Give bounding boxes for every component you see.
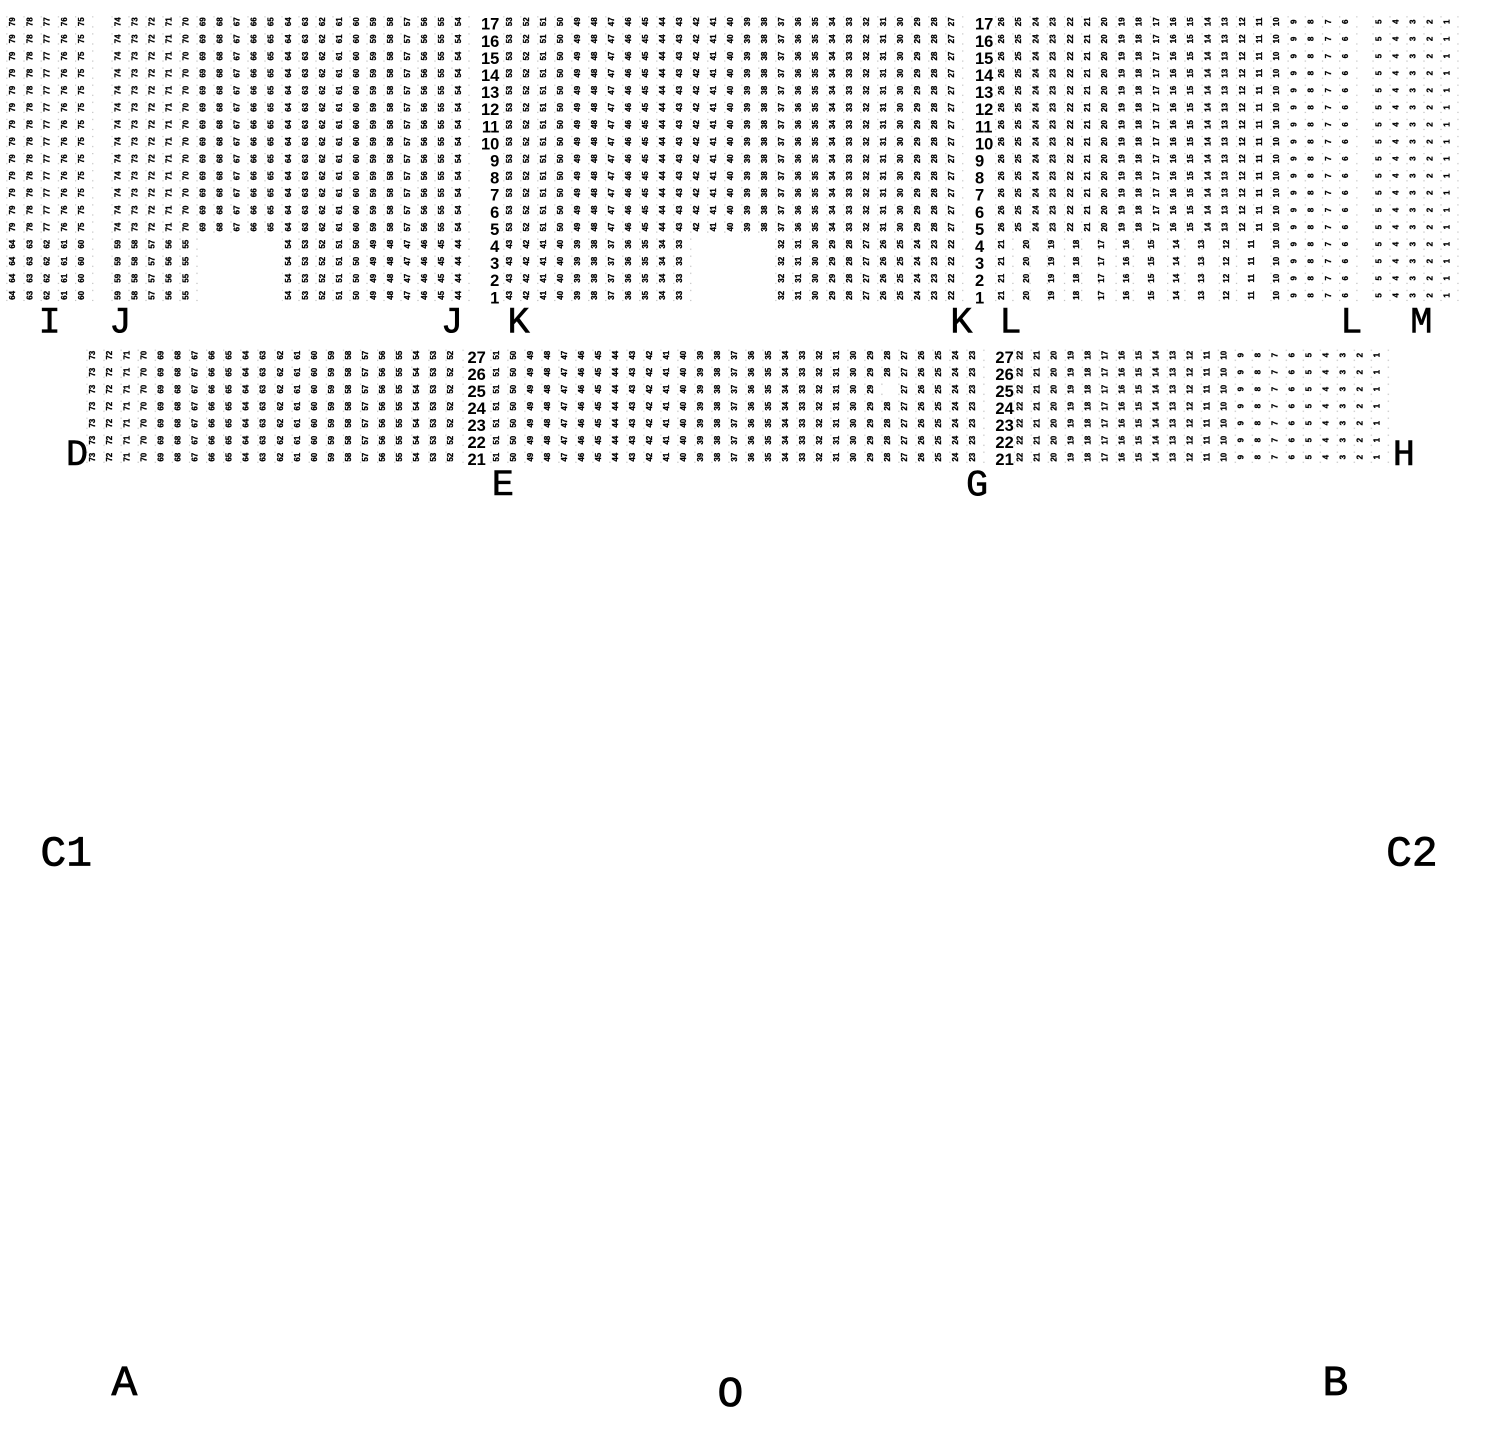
svg-text:11: 11 [482, 118, 499, 136]
svg-text:64: 64 [242, 350, 251, 359]
svg-text:13: 13 [1221, 68, 1230, 77]
svg-text:11: 11 [1247, 291, 1256, 300]
svg-text:67: 67 [191, 452, 200, 461]
svg-text:19: 19 [1067, 418, 1076, 427]
svg-text:17: 17 [1101, 367, 1110, 376]
svg-text:1: 1 [1442, 293, 1451, 298]
svg-text:49: 49 [526, 350, 535, 359]
svg-text:50: 50 [556, 51, 565, 60]
svg-text:28: 28 [883, 452, 892, 461]
svg-text:63: 63 [301, 85, 310, 94]
svg-text:59: 59 [369, 171, 378, 180]
svg-text:22: 22 [1066, 85, 1075, 94]
svg-text:51: 51 [335, 290, 344, 299]
svg-text:69: 69 [199, 222, 208, 231]
svg-text:52: 52 [522, 154, 531, 163]
svg-text:54: 54 [454, 85, 463, 94]
svg-text:6: 6 [1341, 122, 1350, 127]
svg-text:22: 22 [947, 256, 956, 265]
svg-text:18: 18 [1135, 85, 1144, 94]
svg-text:23: 23 [968, 401, 977, 410]
svg-text:7: 7 [1324, 173, 1333, 178]
svg-text:57: 57 [361, 418, 370, 427]
svg-text:36: 36 [624, 256, 633, 265]
svg-text:27: 27 [947, 120, 956, 129]
svg-text:51: 51 [492, 401, 501, 410]
svg-text:20: 20 [1100, 205, 1109, 214]
svg-text:61: 61 [293, 435, 302, 444]
svg-text:20: 20 [1050, 401, 1059, 410]
svg-text:8: 8 [1254, 369, 1263, 374]
svg-text:17: 17 [1152, 68, 1161, 77]
svg-text:5: 5 [1305, 369, 1314, 374]
svg-text:24: 24 [1031, 34, 1040, 43]
svg-text:56: 56 [378, 418, 387, 427]
svg-text:62: 62 [318, 85, 327, 94]
svg-text:33: 33 [845, 171, 854, 180]
svg-text:12: 12 [1238, 222, 1247, 231]
svg-text:17: 17 [1152, 102, 1161, 111]
svg-text:14: 14 [1203, 102, 1212, 111]
svg-text:72: 72 [105, 367, 114, 376]
svg-text:54: 54 [284, 273, 293, 282]
svg-text:5: 5 [490, 221, 499, 239]
svg-text:29: 29 [913, 171, 922, 180]
svg-text:57: 57 [403, 171, 412, 180]
svg-text:49: 49 [369, 256, 378, 265]
svg-text:36: 36 [794, 68, 803, 77]
svg-text:23: 23 [968, 384, 977, 393]
svg-text:45: 45 [641, 34, 650, 43]
svg-text:79: 79 [8, 154, 17, 163]
svg-text:52: 52 [522, 34, 531, 43]
svg-text:18: 18 [1084, 350, 1093, 359]
svg-text:62: 62 [318, 102, 327, 111]
svg-text:32: 32 [862, 171, 871, 180]
svg-text:14: 14 [1203, 171, 1212, 180]
svg-text:15: 15 [975, 50, 993, 68]
svg-text:55: 55 [437, 34, 446, 43]
svg-text:35: 35 [811, 68, 820, 77]
svg-text:44: 44 [658, 17, 667, 26]
svg-text:24: 24 [951, 401, 960, 410]
svg-text:1: 1 [1442, 258, 1451, 263]
svg-text:34: 34 [828, 34, 837, 43]
svg-text:17: 17 [1152, 120, 1161, 129]
svg-text:16: 16 [1118, 418, 1127, 427]
svg-text:9: 9 [490, 153, 499, 171]
svg-text:77: 77 [43, 137, 52, 146]
svg-text:25: 25 [934, 401, 943, 410]
svg-text:13: 13 [1221, 137, 1230, 146]
svg-text:1: 1 [1442, 70, 1451, 75]
svg-text:59: 59 [327, 401, 336, 410]
svg-text:69: 69 [199, 85, 208, 94]
svg-text:C1: C1 [40, 830, 92, 879]
svg-text:79: 79 [8, 34, 17, 43]
svg-text:38: 38 [713, 367, 722, 376]
svg-text:68: 68 [216, 68, 225, 77]
svg-text:20: 20 [1100, 34, 1109, 43]
svg-text:4: 4 [1391, 139, 1400, 144]
svg-text:51: 51 [539, 205, 548, 214]
svg-text:16: 16 [481, 33, 499, 51]
svg-text:25: 25 [1014, 68, 1023, 77]
svg-text:17: 17 [1097, 273, 1106, 282]
svg-text:49: 49 [526, 435, 535, 444]
svg-text:B: B [1322, 1359, 1348, 1408]
svg-text:21: 21 [1083, 85, 1092, 94]
svg-text:32: 32 [815, 435, 824, 444]
svg-text:41: 41 [662, 384, 671, 393]
svg-text:24: 24 [1031, 222, 1040, 231]
svg-text:30: 30 [896, 17, 905, 26]
svg-text:28: 28 [930, 222, 939, 231]
svg-text:72: 72 [147, 120, 156, 129]
svg-text:12: 12 [1222, 273, 1231, 282]
svg-text:24: 24 [913, 290, 922, 299]
svg-text:70: 70 [182, 17, 191, 26]
svg-text:79: 79 [8, 205, 17, 214]
svg-text:71: 71 [122, 435, 131, 444]
svg-text:38: 38 [713, 384, 722, 393]
svg-text:47: 47 [403, 256, 412, 265]
svg-text:49: 49 [573, 171, 582, 180]
svg-text:38: 38 [760, 34, 769, 43]
svg-text:49: 49 [526, 384, 535, 393]
svg-text:43: 43 [628, 367, 637, 376]
svg-text:57: 57 [147, 239, 156, 248]
svg-text:76: 76 [60, 68, 69, 77]
svg-text:7: 7 [1324, 88, 1333, 93]
svg-text:30: 30 [811, 273, 820, 282]
svg-text:46: 46 [420, 239, 429, 248]
svg-text:13: 13 [1221, 34, 1230, 43]
svg-text:29: 29 [828, 256, 837, 265]
svg-text:75: 75 [77, 85, 86, 94]
svg-text:3: 3 [1408, 53, 1417, 58]
svg-text:49: 49 [573, 68, 582, 77]
svg-text:62: 62 [318, 51, 327, 60]
svg-text:33: 33 [845, 120, 854, 129]
svg-text:56: 56 [164, 256, 173, 265]
svg-text:73: 73 [88, 367, 97, 376]
svg-text:35: 35 [811, 137, 820, 146]
svg-text:7: 7 [1324, 156, 1333, 161]
svg-text:60: 60 [352, 51, 361, 60]
svg-text:49: 49 [526, 401, 535, 410]
svg-text:43: 43 [675, 171, 684, 180]
svg-text:38: 38 [760, 17, 769, 26]
svg-text:11: 11 [1203, 435, 1212, 444]
svg-text:23: 23 [1049, 154, 1058, 163]
svg-text:24: 24 [1031, 137, 1040, 146]
svg-text:38: 38 [713, 350, 722, 359]
svg-text:46: 46 [577, 350, 586, 359]
svg-text:48: 48 [543, 350, 552, 359]
svg-text:64: 64 [242, 452, 251, 461]
svg-text:1: 1 [1373, 420, 1382, 425]
svg-text:1: 1 [1442, 276, 1451, 281]
svg-text:15: 15 [1186, 171, 1195, 180]
svg-text:27: 27 [947, 222, 956, 231]
svg-text:19: 19 [1117, 17, 1126, 26]
svg-text:11: 11 [1255, 205, 1264, 214]
svg-text:48: 48 [543, 418, 552, 427]
svg-text:1: 1 [1442, 173, 1451, 178]
svg-text:12: 12 [1238, 85, 1247, 94]
svg-text:36: 36 [747, 350, 756, 359]
svg-text:58: 58 [344, 401, 353, 410]
svg-text:76: 76 [60, 51, 69, 60]
svg-text:42: 42 [692, 205, 701, 214]
svg-text:15: 15 [1186, 120, 1195, 129]
svg-text:73: 73 [130, 137, 139, 146]
svg-text:13: 13 [1197, 290, 1206, 299]
svg-text:7: 7 [1271, 454, 1280, 459]
svg-text:20: 20 [1022, 290, 1031, 299]
svg-text:H: H [1393, 435, 1415, 477]
svg-text:9: 9 [1289, 105, 1298, 110]
svg-text:62: 62 [276, 384, 285, 393]
svg-text:17: 17 [1097, 290, 1106, 299]
svg-text:29: 29 [866, 435, 875, 444]
svg-text:37: 37 [777, 120, 786, 129]
svg-text:14: 14 [1203, 17, 1212, 26]
svg-text:60: 60 [310, 384, 319, 393]
svg-text:68: 68 [216, 205, 225, 214]
svg-text:4: 4 [1322, 437, 1331, 442]
svg-text:23: 23 [1049, 171, 1058, 180]
svg-text:47: 47 [607, 120, 616, 129]
svg-text:36: 36 [794, 171, 803, 180]
svg-text:40: 40 [726, 85, 735, 94]
svg-text:11: 11 [1255, 137, 1264, 146]
svg-text:72: 72 [147, 171, 156, 180]
svg-text:20: 20 [1050, 418, 1059, 427]
svg-text:53: 53 [505, 188, 514, 197]
svg-text:45: 45 [641, 137, 650, 146]
svg-text:55: 55 [182, 239, 191, 248]
svg-text:63: 63 [259, 435, 268, 444]
svg-text:61: 61 [335, 188, 344, 197]
svg-text:31: 31 [832, 452, 841, 461]
svg-text:49: 49 [526, 418, 535, 427]
svg-text:60: 60 [352, 17, 361, 26]
svg-text:35: 35 [811, 51, 820, 60]
svg-text:70: 70 [139, 452, 148, 461]
svg-text:7: 7 [1324, 139, 1333, 144]
svg-text:29: 29 [913, 188, 922, 197]
svg-text:11: 11 [1255, 154, 1264, 163]
svg-text:25: 25 [934, 418, 943, 427]
svg-text:71: 71 [122, 418, 131, 427]
svg-text:4: 4 [1391, 70, 1400, 75]
svg-text:9: 9 [1237, 352, 1246, 357]
svg-text:37: 37 [777, 68, 786, 77]
svg-text:47: 47 [607, 34, 616, 43]
svg-text:34: 34 [828, 154, 837, 163]
svg-text:54: 54 [454, 34, 463, 43]
svg-text:55: 55 [182, 290, 191, 299]
svg-text:6: 6 [1341, 293, 1350, 298]
svg-text:78: 78 [25, 17, 34, 26]
svg-text:74: 74 [113, 51, 122, 60]
svg-text:26: 26 [879, 239, 888, 248]
svg-text:2: 2 [1356, 386, 1365, 391]
svg-text:34: 34 [828, 120, 837, 129]
svg-text:10: 10 [1220, 435, 1229, 444]
svg-text:39: 39 [743, 120, 752, 129]
svg-text:55: 55 [437, 17, 446, 26]
svg-text:7: 7 [490, 187, 499, 205]
svg-text:59: 59 [113, 239, 122, 248]
svg-text:47: 47 [607, 171, 616, 180]
svg-text:14: 14 [1152, 401, 1161, 410]
svg-text:37: 37 [607, 256, 616, 265]
svg-text:37: 37 [730, 435, 739, 444]
svg-text:13: 13 [1197, 239, 1206, 248]
svg-text:31: 31 [794, 239, 803, 248]
svg-text:40: 40 [726, 188, 735, 197]
svg-text:56: 56 [164, 239, 173, 248]
svg-text:4: 4 [1391, 105, 1400, 110]
svg-text:58: 58 [130, 273, 139, 282]
svg-text:46: 46 [624, 51, 633, 60]
svg-text:53: 53 [505, 68, 514, 77]
svg-text:29: 29 [828, 239, 837, 248]
svg-text:5: 5 [1305, 437, 1314, 442]
svg-text:13: 13 [975, 84, 993, 102]
svg-text:25: 25 [1014, 34, 1023, 43]
svg-text:54: 54 [454, 205, 463, 214]
svg-text:66: 66 [208, 367, 217, 376]
svg-text:6: 6 [1341, 276, 1350, 281]
svg-text:L: L [1340, 302, 1362, 344]
svg-text:38: 38 [590, 256, 599, 265]
svg-text:64: 64 [284, 137, 293, 146]
svg-text:28: 28 [930, 154, 939, 163]
svg-text:34: 34 [828, 188, 837, 197]
svg-text:48: 48 [590, 68, 599, 77]
svg-text:57: 57 [147, 273, 156, 282]
svg-text:45: 45 [641, 102, 650, 111]
svg-text:77: 77 [43, 171, 52, 180]
svg-text:27: 27 [995, 349, 1013, 367]
svg-text:64: 64 [242, 384, 251, 393]
svg-text:34: 34 [828, 137, 837, 146]
svg-text:68: 68 [173, 401, 182, 410]
svg-text:9: 9 [1237, 420, 1246, 425]
svg-text:12: 12 [1238, 102, 1247, 111]
svg-text:8: 8 [1307, 19, 1316, 24]
svg-text:53: 53 [505, 102, 514, 111]
svg-text:68: 68 [216, 188, 225, 197]
svg-text:26: 26 [879, 273, 888, 282]
svg-text:13: 13 [1197, 273, 1206, 282]
svg-text:39: 39 [743, 222, 752, 231]
svg-text:7: 7 [1271, 437, 1280, 442]
svg-text:5: 5 [1374, 241, 1383, 246]
svg-text:17: 17 [1101, 418, 1110, 427]
svg-text:10: 10 [481, 135, 499, 153]
svg-text:69: 69 [156, 367, 165, 376]
svg-text:60: 60 [310, 367, 319, 376]
svg-text:21: 21 [1083, 120, 1092, 129]
svg-text:19: 19 [1047, 239, 1056, 248]
svg-text:62: 62 [43, 273, 52, 282]
svg-text:62: 62 [43, 256, 52, 265]
svg-text:52: 52 [522, 85, 531, 94]
svg-text:31: 31 [832, 367, 841, 376]
svg-text:21: 21 [1033, 401, 1042, 410]
svg-text:54: 54 [454, 102, 463, 111]
svg-text:48: 48 [386, 290, 395, 299]
svg-text:60: 60 [352, 85, 361, 94]
svg-text:52: 52 [446, 350, 455, 359]
svg-text:22: 22 [1066, 102, 1075, 111]
svg-text:67: 67 [233, 137, 242, 146]
svg-text:50: 50 [556, 68, 565, 77]
svg-text:27: 27 [947, 68, 956, 77]
svg-text:6: 6 [1341, 190, 1350, 195]
svg-text:13: 13 [1169, 435, 1178, 444]
svg-text:76: 76 [60, 188, 69, 197]
svg-text:71: 71 [164, 171, 173, 180]
svg-text:79: 79 [8, 51, 17, 60]
svg-text:6: 6 [1341, 207, 1350, 212]
svg-text:23: 23 [968, 350, 977, 359]
svg-text:C2: C2 [1386, 830, 1438, 879]
svg-text:39: 39 [696, 452, 705, 461]
svg-text:26: 26 [917, 350, 926, 359]
svg-text:52: 52 [446, 367, 455, 376]
svg-text:54: 54 [454, 51, 463, 60]
svg-text:71: 71 [164, 34, 173, 43]
svg-text:33: 33 [675, 273, 684, 282]
svg-text:5: 5 [1374, 173, 1383, 178]
svg-text:62: 62 [43, 239, 52, 248]
svg-text:48: 48 [543, 384, 552, 393]
svg-text:60: 60 [310, 418, 319, 427]
svg-text:20: 20 [1022, 239, 1031, 248]
svg-text:26: 26 [997, 120, 1006, 129]
svg-text:12: 12 [1238, 17, 1247, 26]
svg-text:57: 57 [403, 120, 412, 129]
svg-text:46: 46 [624, 120, 633, 129]
svg-text:32: 32 [815, 384, 824, 393]
svg-text:M: M [1410, 302, 1432, 344]
svg-text:9: 9 [1289, 70, 1298, 75]
svg-text:34: 34 [828, 68, 837, 77]
svg-text:1: 1 [1442, 207, 1451, 212]
svg-text:68: 68 [216, 34, 225, 43]
svg-text:57: 57 [147, 290, 156, 299]
svg-text:9: 9 [1237, 403, 1246, 408]
svg-text:11: 11 [1247, 256, 1256, 265]
svg-text:43: 43 [628, 350, 637, 359]
svg-text:71: 71 [164, 51, 173, 60]
svg-text:31: 31 [879, 205, 888, 214]
svg-text:35: 35 [811, 102, 820, 111]
svg-text:41: 41 [662, 401, 671, 410]
svg-text:34: 34 [781, 418, 790, 427]
svg-text:48: 48 [386, 273, 395, 282]
svg-text:38: 38 [760, 120, 769, 129]
svg-text:48: 48 [590, 171, 599, 180]
svg-text:28: 28 [883, 350, 892, 359]
svg-text:12: 12 [481, 101, 499, 119]
